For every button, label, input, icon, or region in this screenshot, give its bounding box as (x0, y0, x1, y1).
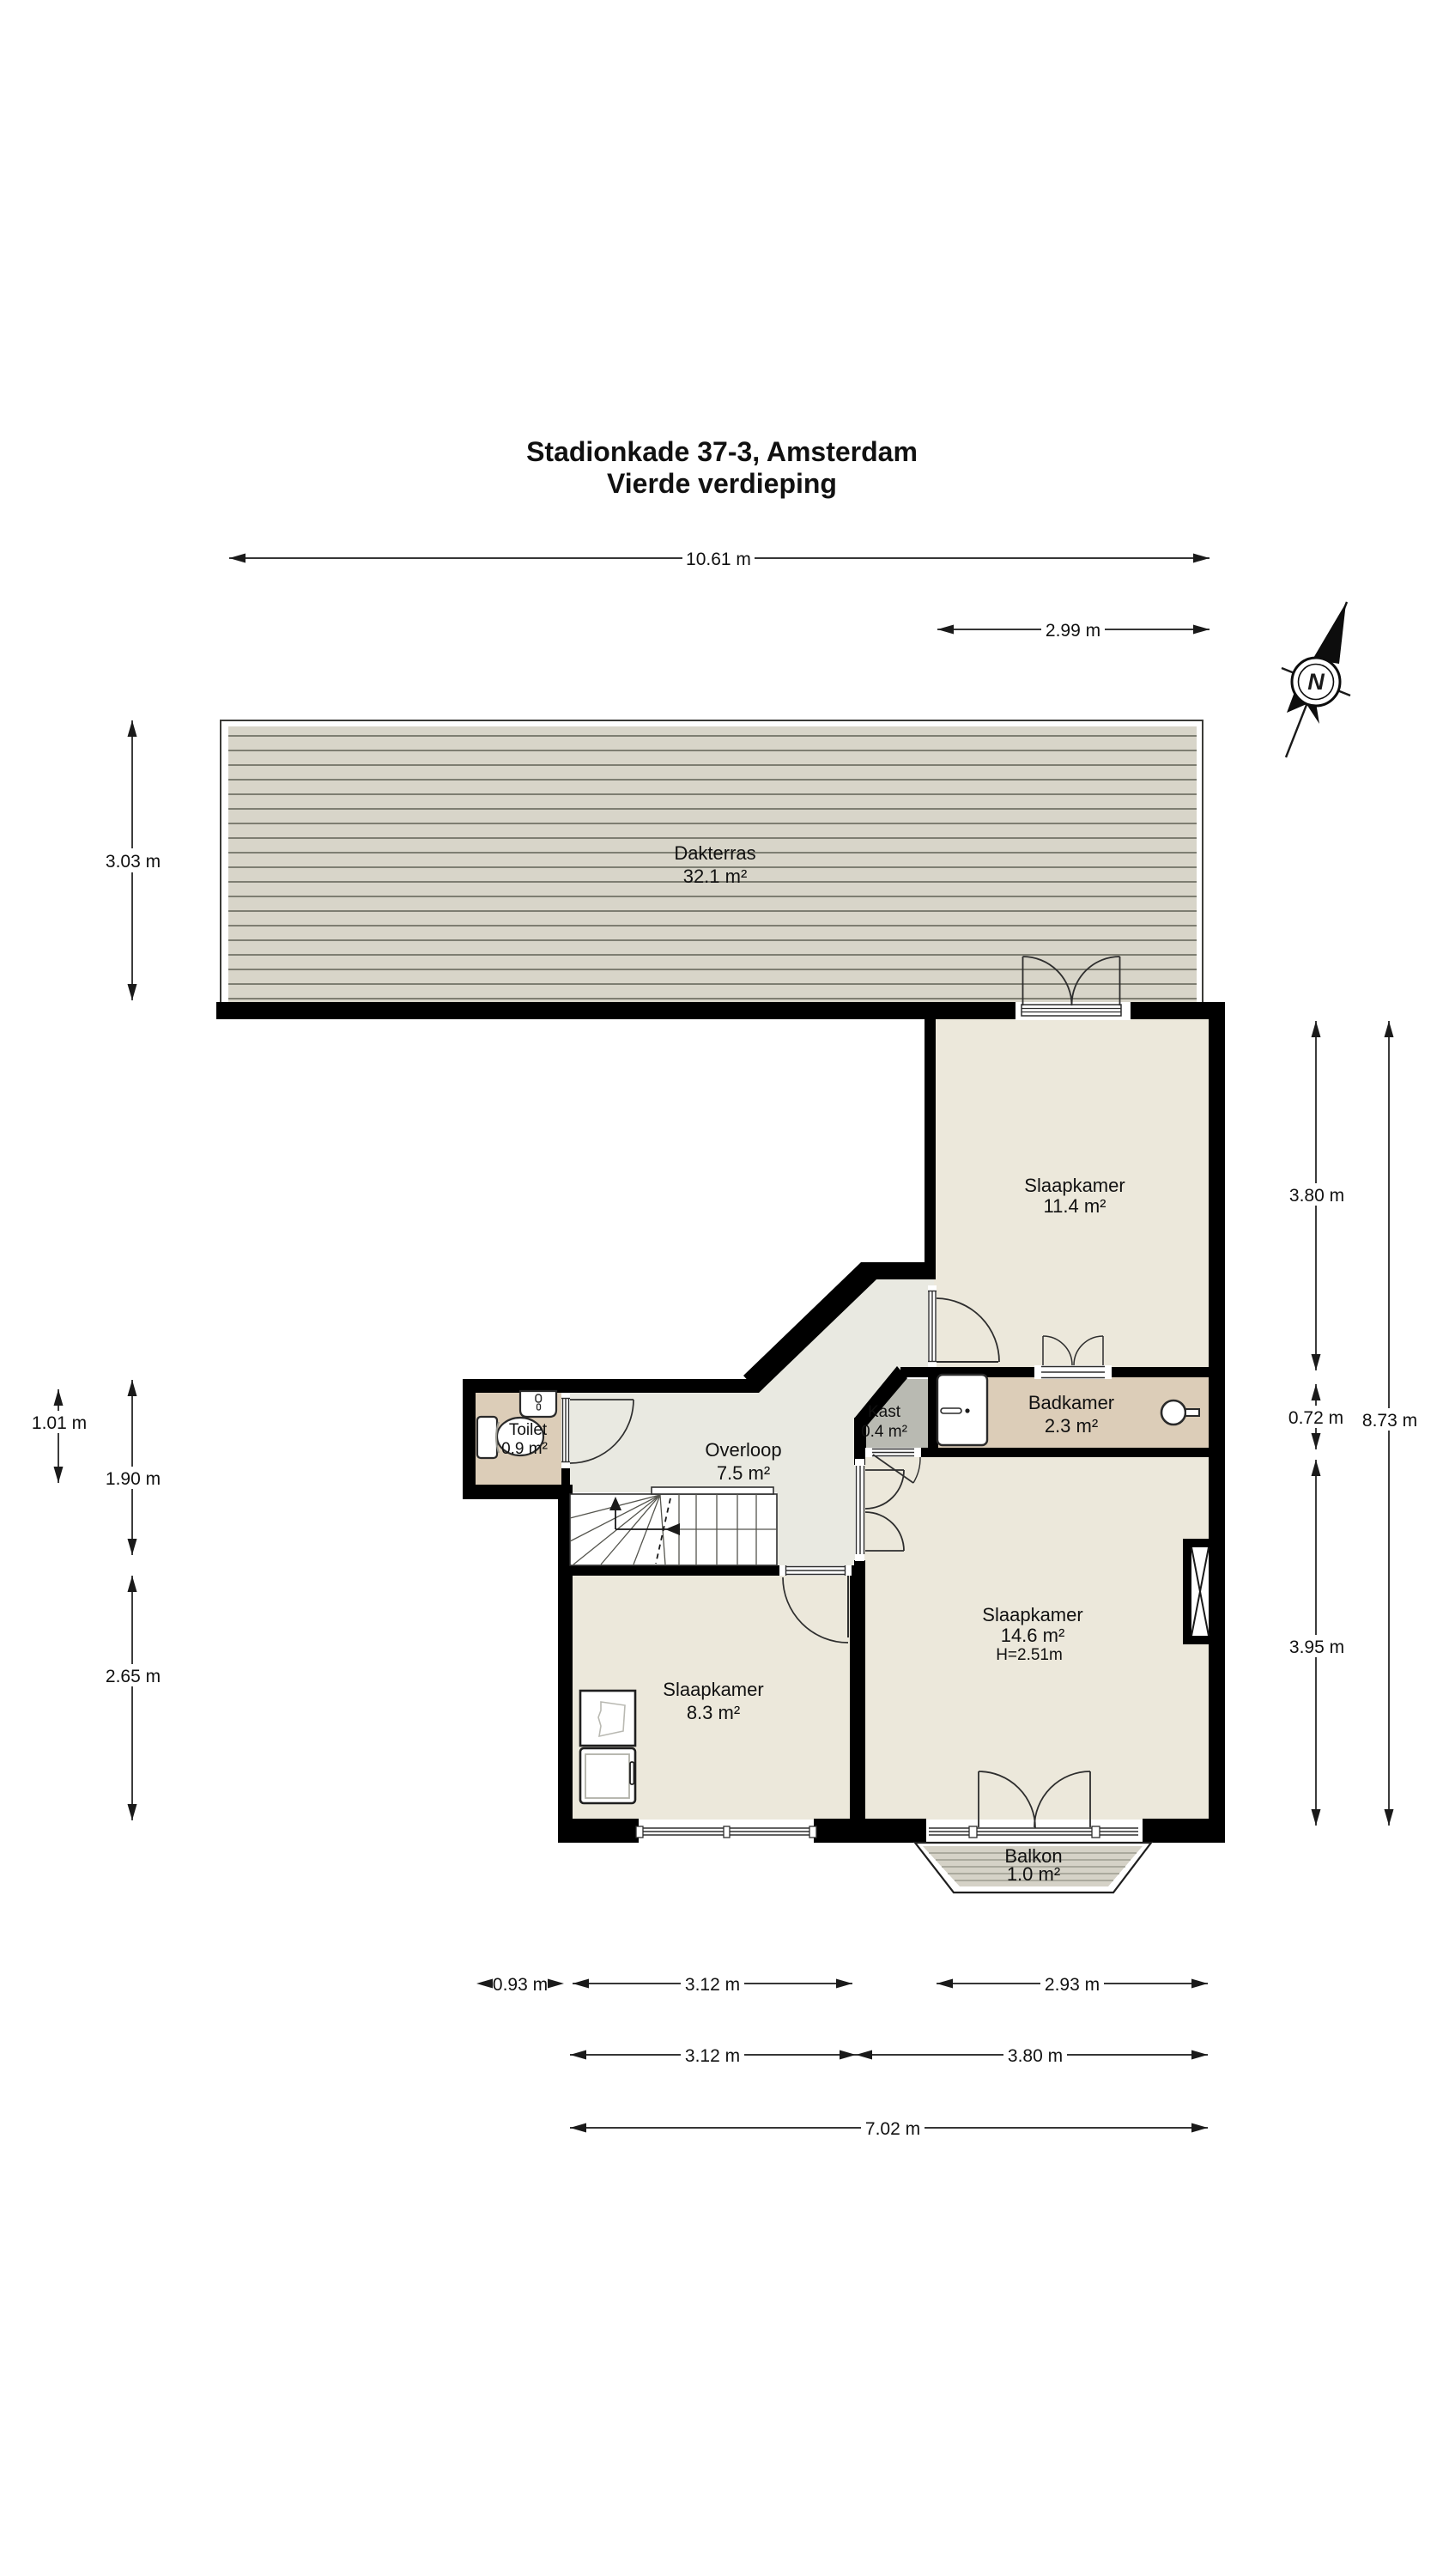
svg-text:2.93 m: 2.93 m (1045, 1975, 1100, 1995)
svg-text:1.90 m: 1.90 m (106, 1469, 161, 1489)
svg-text:11.4 m²: 11.4 m² (1044, 1195, 1106, 1217)
svg-text:Toilet: Toilet (509, 1421, 548, 1439)
svg-text:8.73 m: 8.73 m (1362, 1411, 1417, 1431)
svg-text:0.9 m²: 0.9 m² (501, 1440, 548, 1458)
svg-text:7.02 m: 7.02 m (865, 2119, 920, 2139)
svg-text:Kast: Kast (868, 1403, 901, 1421)
svg-text:32.1 m²: 32.1 m² (683, 866, 748, 887)
svg-text:H=2.51m: H=2.51m (996, 1646, 1063, 1664)
svg-text:Slaapkamer: Slaapkamer (982, 1604, 1082, 1625)
svg-text:3.12 m: 3.12 m (685, 2046, 740, 2066)
svg-text:Slaapkamer: Slaapkamer (1024, 1175, 1125, 1196)
svg-text:Slaapkamer: Slaapkamer (663, 1679, 763, 1700)
svg-text:14.6 m²: 14.6 m² (1001, 1625, 1065, 1646)
svg-text:3.12 m: 3.12 m (685, 1975, 740, 1995)
svg-text:7.5 m²: 7.5 m² (717, 1462, 770, 1484)
svg-text:2.65 m: 2.65 m (106, 1667, 161, 1686)
svg-text:10.61 m: 10.61 m (686, 550, 751, 569)
svg-text:2.3 m²: 2.3 m² (1045, 1415, 1098, 1437)
svg-text:2.99 m: 2.99 m (1046, 621, 1100, 641)
svg-text:3.95 m: 3.95 m (1289, 1637, 1344, 1657)
svg-text:0.72 m: 0.72 m (1288, 1408, 1343, 1428)
svg-text:3.80 m: 3.80 m (1289, 1186, 1344, 1206)
svg-text:1.0 m²: 1.0 m² (1007, 1863, 1060, 1885)
svg-text:N: N (1307, 669, 1325, 695)
svg-text:0.4 m²: 0.4 m² (861, 1423, 907, 1441)
svg-text:3.80 m: 3.80 m (1008, 2046, 1063, 2066)
svg-text:0.93 m: 0.93 m (493, 1975, 548, 1995)
svg-text:Vierde verdieping: Vierde verdieping (607, 468, 837, 499)
svg-text:8.3 m²: 8.3 m² (687, 1702, 740, 1723)
svg-text:Badkamer: Badkamer (1028, 1392, 1114, 1413)
svg-text:Dakterras: Dakterras (674, 842, 755, 864)
svg-text:Overloop: Overloop (705, 1439, 781, 1461)
svg-text:1.01 m: 1.01 m (32, 1413, 87, 1433)
svg-text:3.03 m: 3.03 m (106, 852, 161, 872)
svg-text:Stadionkade 37-3, Amsterdam: Stadionkade 37-3, Amsterdam (526, 436, 918, 467)
